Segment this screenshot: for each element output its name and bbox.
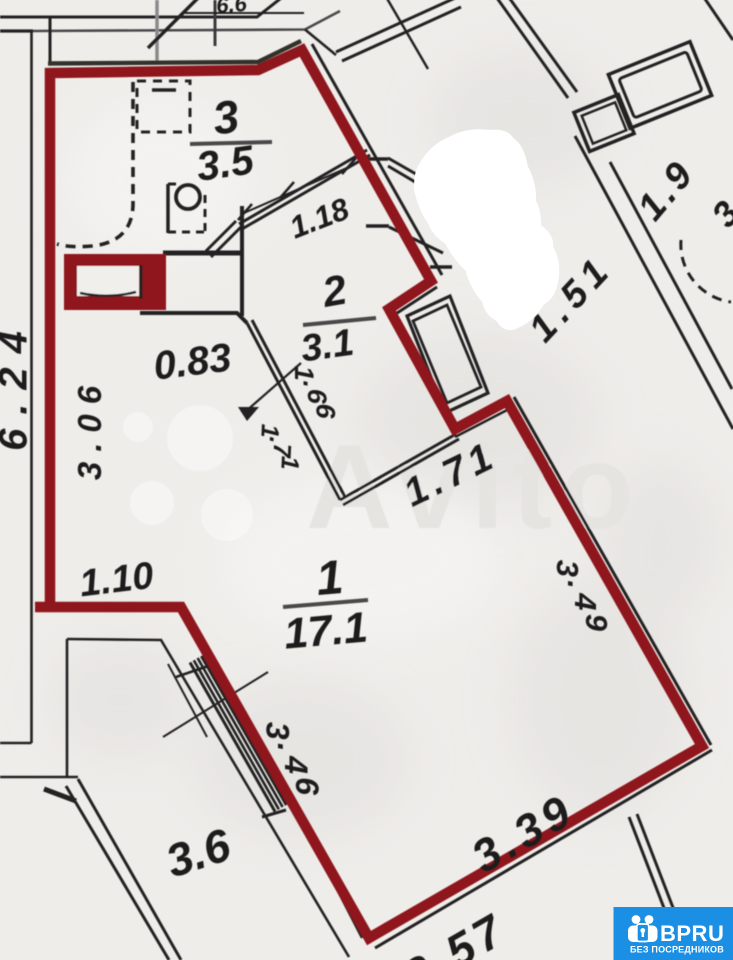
svg-text:3.1: 3.1 xyxy=(298,322,356,371)
svg-text:1.10: 1.10 xyxy=(77,555,156,606)
svg-text:0.83: 0.83 xyxy=(151,336,234,389)
svg-text:BPRU: BPRU xyxy=(660,921,724,946)
svg-text:6.24: 6.24 xyxy=(0,317,36,451)
svg-text:17.1: 17.1 xyxy=(282,603,370,658)
svg-text:1: 1 xyxy=(314,551,345,606)
svg-text:БЕЗ ПОСРЕДНИКОВ: БЕЗ ПОСРЕДНИКОВ xyxy=(630,945,724,955)
svg-text:3.06: 3.06 xyxy=(71,376,108,480)
svg-text:6.6: 6.6 xyxy=(215,0,248,18)
